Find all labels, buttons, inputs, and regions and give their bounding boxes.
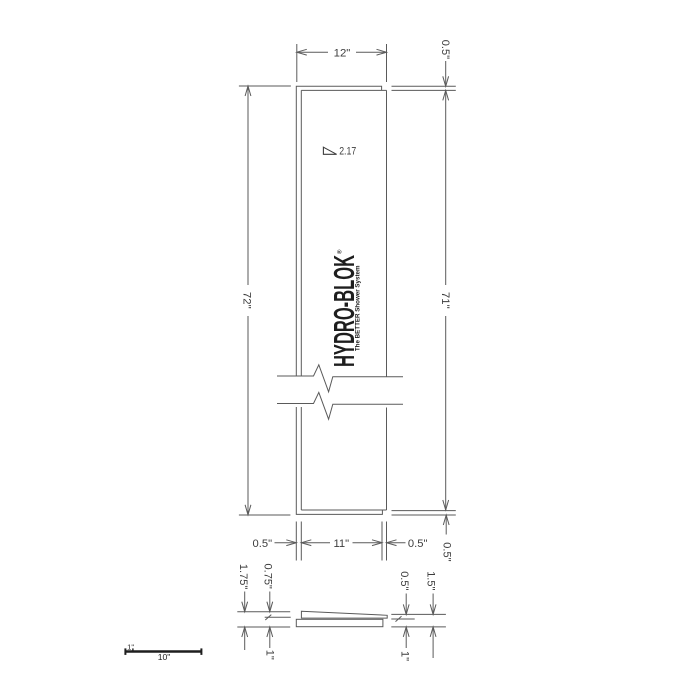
- svg-text:71": 71": [439, 292, 451, 309]
- svg-text:0.5": 0.5": [440, 542, 452, 561]
- svg-text:The BETTER Shower System: The BETTER Shower System: [356, 266, 362, 352]
- svg-text:0.5": 0.5": [439, 40, 451, 59]
- svg-text:®: ®: [337, 249, 344, 254]
- svg-text:11": 11": [334, 538, 350, 550]
- svg-text:1.75": 1.75": [237, 564, 249, 589]
- svg-text:1": 1": [264, 650, 276, 660]
- svg-text:0.5": 0.5": [408, 538, 428, 550]
- svg-text:2.17: 2.17: [339, 146, 356, 158]
- svg-text:0.5": 0.5": [398, 571, 410, 590]
- svg-text:10": 10": [158, 652, 171, 662]
- svg-text:72": 72": [241, 292, 253, 309]
- svg-text:0.75": 0.75": [262, 564, 274, 589]
- svg-text:1.5": 1.5": [425, 571, 437, 590]
- svg-text:0.5": 0.5": [253, 538, 273, 550]
- svg-text:1": 1": [399, 651, 411, 661]
- svg-text:12": 12": [334, 48, 351, 60]
- svg-text:1": 1": [127, 643, 134, 652]
